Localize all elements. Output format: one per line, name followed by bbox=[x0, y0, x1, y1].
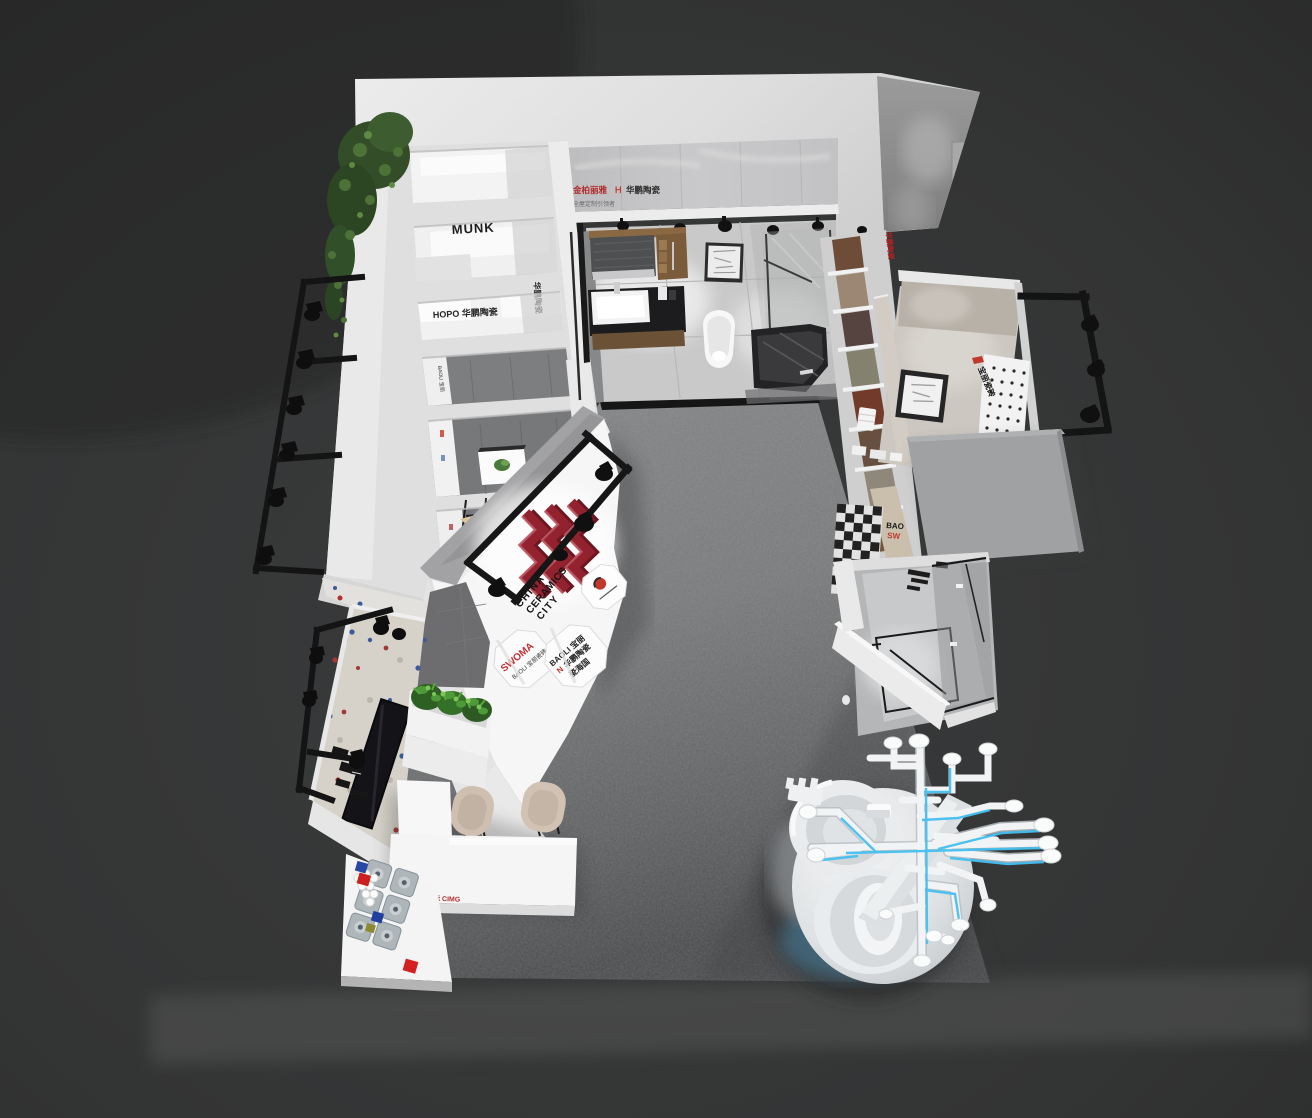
svg-text:金柏丽雅: 金柏丽雅 bbox=[572, 185, 608, 195]
svg-text:Ｈ: Ｈ bbox=[614, 185, 623, 195]
svg-text:BAO: BAO bbox=[886, 521, 904, 531]
svg-text:华鹏陶瓷: 华鹏陶瓷 bbox=[626, 185, 661, 195]
svg-text:SW: SW bbox=[887, 531, 901, 541]
svg-text:全屋定制引领者: 全屋定制引领者 bbox=[573, 200, 615, 208]
